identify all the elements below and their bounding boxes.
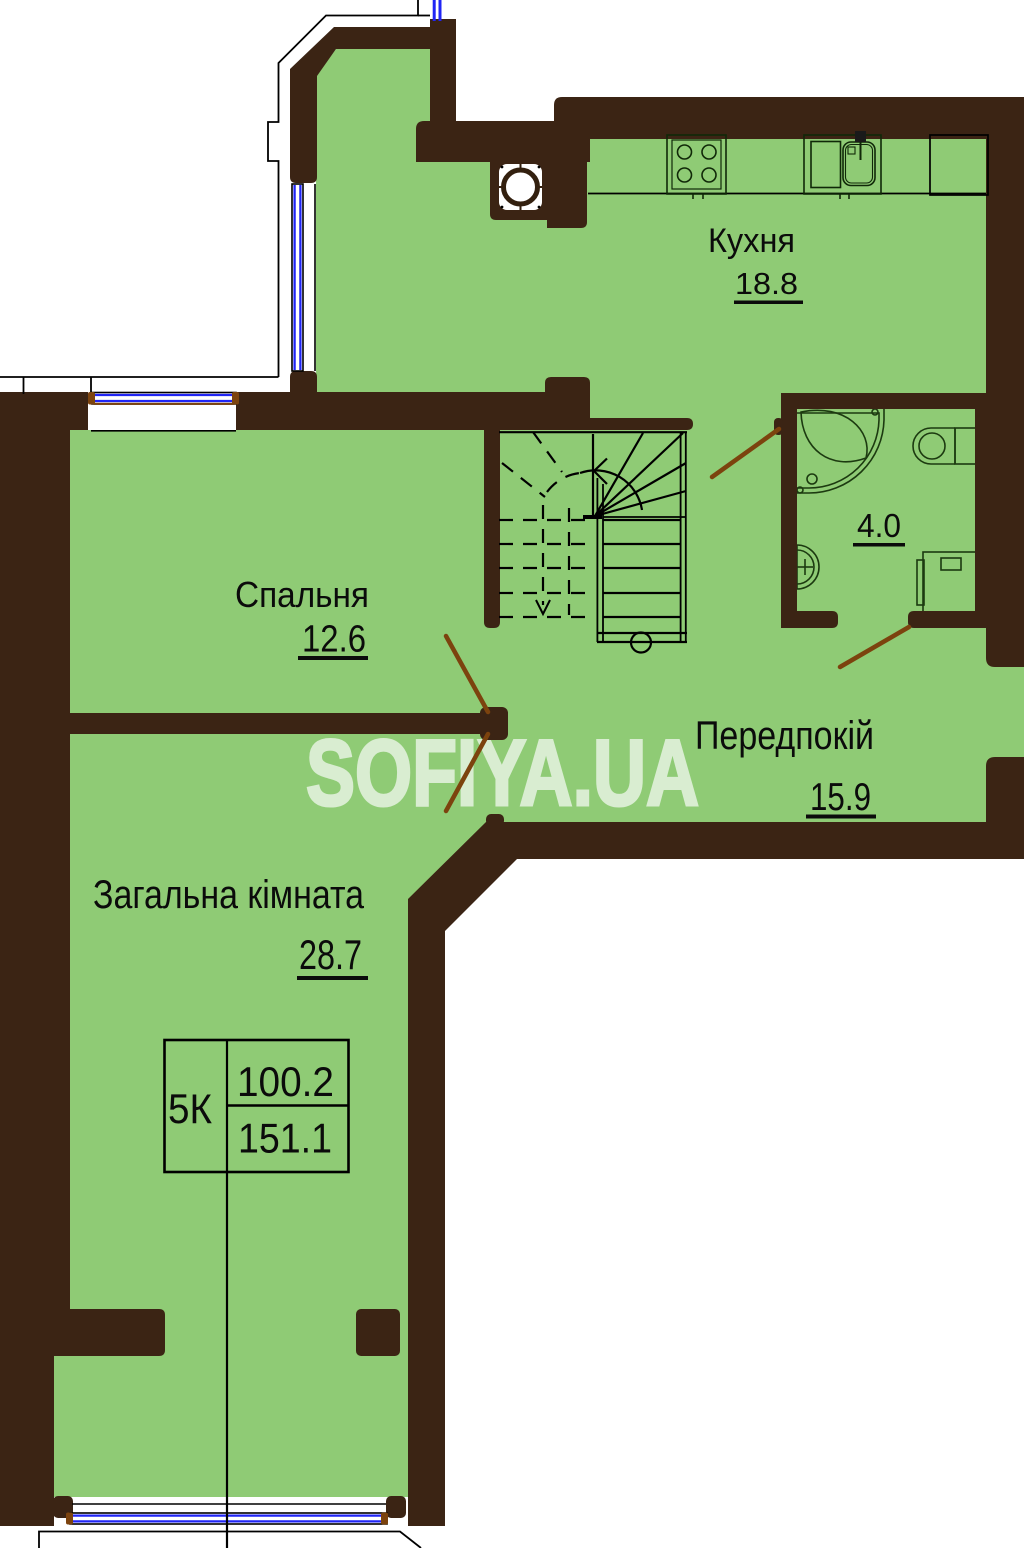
svg-text:15.9: 15.9 bbox=[810, 776, 871, 819]
svg-text:100.2: 100.2 bbox=[237, 1058, 334, 1105]
svg-text:18.8: 18.8 bbox=[735, 266, 798, 301]
svg-text:5К: 5К bbox=[168, 1085, 212, 1132]
svg-text:Кухня: Кухня bbox=[708, 222, 795, 260]
svg-text:Передпокій: Передпокій bbox=[695, 714, 874, 758]
svg-text:12.6: 12.6 bbox=[302, 619, 366, 661]
svg-text:4.0: 4.0 bbox=[857, 507, 901, 544]
svg-text:Спальня: Спальня bbox=[235, 574, 369, 615]
svg-text:28.7: 28.7 bbox=[299, 931, 362, 978]
svg-text:151.1: 151.1 bbox=[238, 1115, 332, 1162]
svg-text:Загальна кімната: Загальна кімната bbox=[93, 873, 365, 917]
